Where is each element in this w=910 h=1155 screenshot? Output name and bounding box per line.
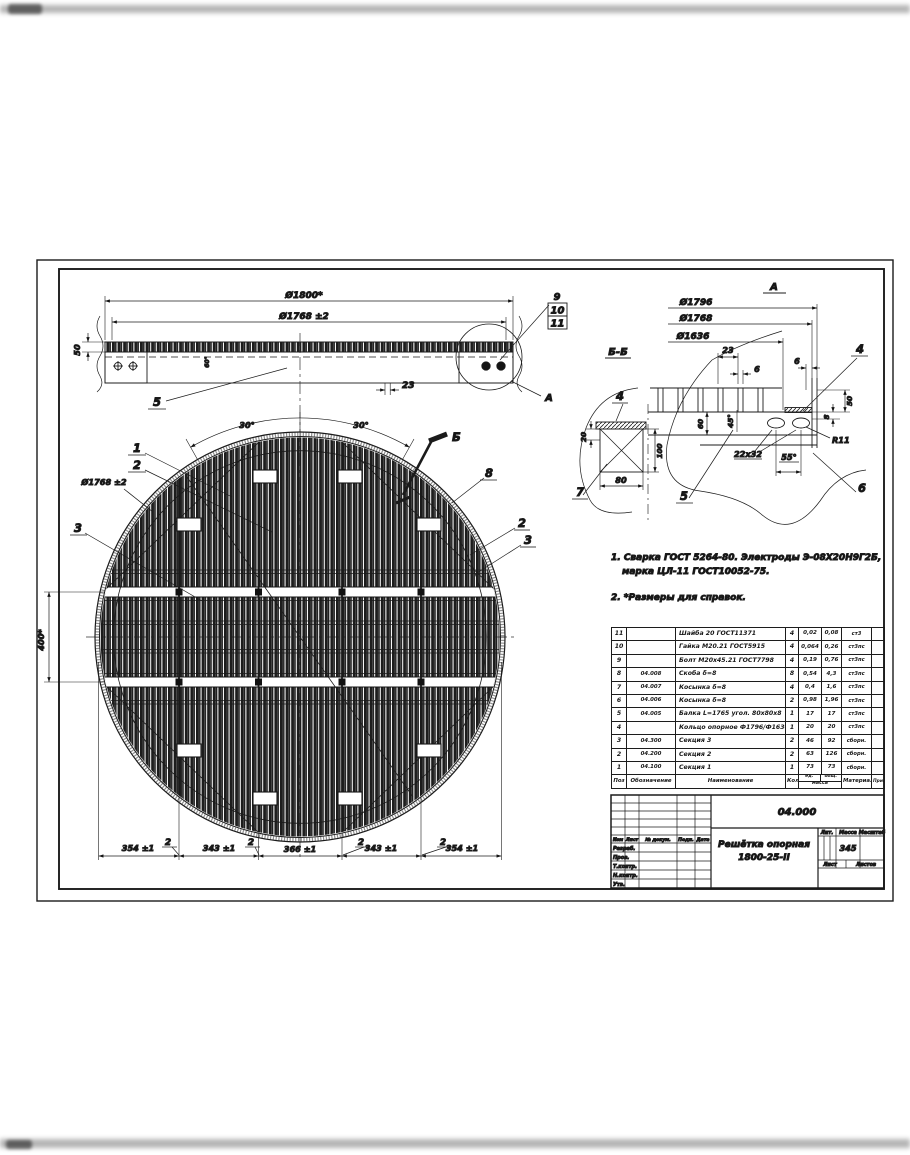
bom-header-name: Наименование	[676, 775, 786, 789]
col-izm: Изм	[613, 837, 624, 843]
dim-6-left: 6	[754, 364, 760, 374]
pos-label-1: 1	[133, 441, 141, 455]
bom-material: сборн.	[842, 735, 872, 748]
bom-header-material: Материал	[842, 775, 872, 789]
dim-343-2: 343 ±1	[365, 843, 398, 853]
pos-label-8: 8	[485, 466, 493, 480]
section-b-letter: Б	[452, 430, 461, 444]
detail-a-view: А Ø1796 Ø1768 Ø1636 23 6 6 4 60 45° 50 8…	[648, 282, 868, 524]
bom-name: Секция 2	[676, 748, 786, 761]
bom-header-pos: Поз	[612, 775, 627, 789]
dim-23-elev: 23	[402, 381, 415, 391]
pos-label-5-detail: 5	[680, 489, 688, 503]
bom-note	[872, 628, 885, 641]
dim-8-detail: 8	[822, 414, 831, 419]
col-sign: Подп.	[678, 837, 694, 843]
bom-qty: 8	[786, 668, 799, 681]
bom-qty: 4	[786, 654, 799, 667]
bom-designation: 04.008	[627, 668, 676, 681]
bom-name: Скоба δ=8	[676, 668, 786, 681]
bom-material: ст3пс	[842, 708, 872, 721]
bom-mass-unit: 17	[799, 708, 822, 721]
gap-label-1: 2	[165, 838, 171, 848]
bom-mass-unit: 73	[799, 761, 822, 774]
dim-400: 400*	[36, 629, 46, 652]
dim-80-bb: 80	[615, 475, 627, 485]
bom-qty: 4	[786, 681, 799, 694]
dim-slot-22x32: 22x32	[734, 449, 762, 459]
bom-header-row: Поз Обозначение Наименование Кол ед. общ…	[612, 775, 885, 789]
dim-d1796: Ø1796	[679, 297, 713, 308]
bom-mass-unit: 0,54	[799, 668, 822, 681]
bom-note	[872, 668, 885, 681]
dim-50-detail: 50	[845, 396, 854, 406]
lit-label: Лит.	[820, 830, 834, 836]
bom-name: Кольцо опорное Ф1796/Ф1636 δ=8	[676, 721, 786, 734]
bom-designation	[627, 654, 676, 667]
bom-note	[872, 748, 885, 761]
pos-label-3: 3	[74, 521, 82, 535]
pos-label-7: 7	[576, 485, 584, 499]
notes: 1. Сварка ГОСТ 5264-80. Электроды Э-08Х2…	[611, 553, 881, 603]
pos-label-6-detail: 6	[858, 481, 866, 495]
bom-pos: 8	[612, 668, 627, 681]
sheets-label: Листов	[855, 862, 876, 868]
bom-pos: 3	[612, 735, 627, 748]
dim-d1768-elev: Ø1768 ±2	[278, 311, 329, 322]
role-prov: Пров.	[613, 855, 629, 861]
bom-pos: 1	[612, 761, 627, 774]
bom-mass-total: 4,3	[822, 668, 842, 681]
bom-pos: 7	[612, 681, 627, 694]
dim-366: 366 ±1	[284, 844, 317, 854]
bom-header-designation: Обозначение	[627, 775, 676, 789]
bom-mass-unit: 0,02	[799, 628, 822, 641]
bom-designation: 04.007	[627, 681, 676, 694]
bom-mass-unit: 0,98	[799, 694, 822, 707]
drawing-sheet: Ø1800* Ø1768 ±2 50 60° 23 5 9 10 11 А	[0, 0, 910, 1155]
bom-mass-total: 126	[822, 748, 842, 761]
dim-354-1: 354 ±1	[122, 843, 155, 853]
dim-45deg: 45°	[726, 414, 735, 428]
bom-pos: 4	[612, 721, 627, 734]
bom-name: Косынка δ=8	[676, 694, 786, 707]
bom-qty: 1	[786, 708, 799, 721]
bom-material: ст3пс	[842, 681, 872, 694]
bom-designation: 04.100	[627, 761, 676, 774]
bom-row: 10Гайка М20.21 ГОСТ591540,0640,26ст3пс	[612, 641, 885, 654]
pos-label-2-right: 2	[518, 516, 526, 530]
bom-name: Гайка М20.21 ГОСТ5915	[676, 641, 786, 654]
dim-d1768-plan: Ø1768 ±2	[80, 477, 126, 487]
bom-designation	[627, 721, 676, 734]
bom-pos: 2	[612, 748, 627, 761]
bom-mass-unit: 63	[799, 748, 822, 761]
bom-name: Болт М20х45.21 ГОСТ7798	[676, 654, 786, 667]
dim-100-bb: 100	[655, 443, 664, 458]
pos-label-5: 5	[153, 395, 161, 409]
bom-note	[872, 735, 885, 748]
drawing-title-line2: 1800-25-II	[738, 853, 790, 863]
bom-designation	[627, 641, 676, 654]
bom-note	[872, 681, 885, 694]
bom-pos: 5	[612, 708, 627, 721]
bom-designation: 04.005	[627, 708, 676, 721]
bom-row: 9Болт М20х45.21 ГОСТ779840,190,76ст3пс	[612, 654, 885, 667]
dim-343-1: 343 ±1	[203, 843, 236, 853]
bom-qty: 1	[786, 761, 799, 774]
bom-pos: 9	[612, 654, 627, 667]
dim-60-detail: 60	[696, 419, 705, 429]
dim-354-2: 354 ±1	[446, 843, 479, 853]
bom-row: 104.100Секция 117373сборн.	[612, 761, 885, 774]
bom-pos: 6	[612, 694, 627, 707]
detail-a-title: А	[769, 282, 778, 293]
sheet-label: Лист	[822, 862, 838, 868]
bom-mass-total: 1,96	[822, 694, 842, 707]
bom-designation: 04.300	[627, 735, 676, 748]
bom-name: Шайба 20 ГОСТ11371	[676, 628, 786, 641]
drawing-title-line1: Решётка опорная	[718, 840, 810, 850]
drawing-page: { "elevation": { "d1800": "Ø1800*", "d17…	[0, 0, 910, 1155]
note-1: 1. Сварка ГОСТ 5264-80. Электроды Э-08Х2…	[611, 553, 881, 563]
angle-30-right: 30°	[353, 420, 369, 430]
bom-row: 204.200Секция 2263126сборн.	[612, 748, 885, 761]
bom-material: ст3	[842, 628, 872, 641]
bom-pos: 11	[612, 628, 627, 641]
pos-label-3-right: 3	[524, 533, 532, 547]
pos-label-4-bb: 4	[615, 389, 624, 403]
bom-mass-unit: 0,4	[799, 681, 822, 694]
bom-note	[872, 761, 885, 774]
bom-mass-unit: 46	[799, 735, 822, 748]
mass-value: 345	[839, 843, 856, 853]
dim-r11: R11	[832, 435, 850, 445]
bolt-symbols	[113, 361, 138, 371]
col-list: Лист	[625, 837, 639, 843]
dim-50-elev: 50	[72, 344, 82, 356]
bom-row: 604.006Косынка δ=820,981,96ст3пс	[612, 694, 885, 707]
scale-label: Масштаб	[859, 829, 886, 836]
bom-header-qty: Кол	[786, 775, 799, 789]
bom-mass-unit: 20	[799, 721, 822, 734]
bom-note	[872, 641, 885, 654]
bom-mass-total: 73	[822, 761, 842, 774]
bom-designation: 04.006	[627, 694, 676, 707]
role-tkontr: Т.контр.	[613, 864, 637, 870]
bom-table: 11Шайба 20 ГОСТ1137140,020,08ст3 10Гайка…	[611, 627, 885, 789]
dim-23-detail: 23	[722, 345, 734, 355]
section-bb-title: Б-Б	[608, 347, 628, 358]
weld-60deg: 60°	[204, 356, 211, 367]
bom-material: ст3пс	[842, 668, 872, 681]
bom-row: 804.008Скоба δ=880,544,3ст3пс	[612, 668, 885, 681]
bom-mass-total: 1,6	[822, 681, 842, 694]
bom-designation: 04.200	[627, 748, 676, 761]
bom-qty: 2	[786, 694, 799, 707]
col-date: Дата	[696, 837, 710, 843]
angle-30-left: 30°	[239, 420, 255, 430]
role-nkontr: Н.контр.	[613, 873, 638, 879]
bom-material: ст3пс	[842, 721, 872, 734]
pos-label-2: 2	[133, 458, 141, 472]
mass-label: Масса	[839, 830, 857, 836]
role-razrab: Разраб.	[613, 845, 635, 852]
dim-d1636: Ø1636	[676, 331, 710, 342]
bom-qty: 1	[786, 721, 799, 734]
bom-note	[872, 654, 885, 667]
section-bb-view: Б-Б 4 7 20 100 80	[572, 347, 664, 524]
dim-6-right: 6	[794, 356, 800, 366]
plan-view: Ø1768 ±2 30° 30° 1 2 3 8 2 3 Б 400* 354 …	[36, 333, 536, 860]
dim-20-bb: 20	[579, 432, 588, 442]
bom-row: 304.300Секция 324692сборн.	[612, 735, 885, 748]
bom-mass-total: 92	[822, 735, 842, 748]
bom-mass-total: 0,76	[822, 654, 842, 667]
bom-material: ст3пс	[842, 694, 872, 707]
bom-row: 4Кольцо опорное Ф1796/Ф1636 δ=812020ст3п…	[612, 721, 885, 734]
elevation-view: Ø1800* Ø1768 ±2 50 60° 23 5 9 10 11 А	[72, 290, 567, 409]
bom-qty: 2	[786, 735, 799, 748]
bom-qty: 4	[786, 641, 799, 654]
pos-label-11: 11	[551, 319, 565, 330]
bom-material: ст3пс	[842, 641, 872, 654]
bom-name: Секция 3	[676, 735, 786, 748]
note-1b: марка ЦЛ-11 ГОСТ10052-75.	[622, 567, 770, 577]
bom-mass-total: 20	[822, 721, 842, 734]
bom-note	[872, 721, 885, 734]
bom-qty: 2	[786, 748, 799, 761]
doc-number: 04.000	[778, 807, 817, 818]
bom-name: Секция 1	[676, 761, 786, 774]
bom-material: сборн.	[842, 748, 872, 761]
bom-header-mass: ед. общ. масса	[799, 775, 842, 789]
title-block: 04.000 Решётка опорная 1800-25-II Лит. М…	[611, 795, 886, 888]
bom-material: сборн.	[842, 761, 872, 774]
bom-mass-total: 0,26	[822, 641, 842, 654]
bom-note	[872, 708, 885, 721]
pos-label-4-detail: 4	[855, 342, 864, 356]
pos-label-9: 9	[554, 292, 561, 303]
bom-mass-total: 17	[822, 708, 842, 721]
bom-pos: 10	[612, 641, 627, 654]
bom-name: Косынка δ=8	[676, 681, 786, 694]
dim-d1800: Ø1800*	[284, 290, 323, 301]
dim-55deg: 55°	[781, 452, 797, 462]
bom-designation	[627, 628, 676, 641]
bom-row: 11Шайба 20 ГОСТ1137140,020,08ст3	[612, 628, 885, 641]
note-2: 2. *Размеры для справок.	[611, 593, 746, 603]
bom-mass-unit: 0,19	[799, 654, 822, 667]
bom-row: 504.005Балка L=1765 угол. 80х80х811717ст…	[612, 708, 885, 721]
bom-mass-total: 0,08	[822, 628, 842, 641]
bom-row: 704.007Косынка δ=840,41,6ст3пс	[612, 681, 885, 694]
bom-name: Балка L=1765 угол. 80х80х8	[676, 708, 786, 721]
bom-qty: 4	[786, 628, 799, 641]
bom-header-note: Прим	[872, 775, 885, 789]
dim-d1768-detail: Ø1768	[679, 313, 713, 324]
bom-mass-unit: 0,064	[799, 641, 822, 654]
bom-note	[872, 694, 885, 707]
gap-label-2: 2	[248, 838, 254, 848]
bom-material: ст3пс	[842, 654, 872, 667]
role-utv: Утв.	[613, 882, 625, 888]
col-doc: № докум.	[645, 837, 671, 843]
pos-label-10: 10	[551, 306, 565, 317]
detail-a-callout: А	[544, 393, 553, 404]
bom-header-mass-label: масса	[799, 782, 841, 788]
gap-label-4: 2	[440, 838, 446, 848]
gap-label-3: 2	[358, 838, 364, 848]
